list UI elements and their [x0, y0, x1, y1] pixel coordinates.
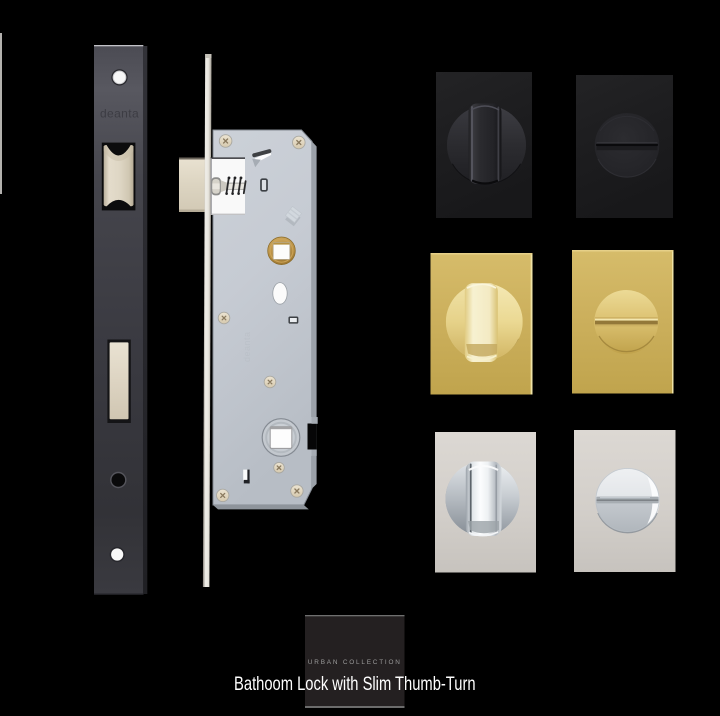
svg-text:Bathoom Lock with Slim Thumb-T: Bathoom Lock with Slim Thumb-Turn: [234, 674, 476, 695]
svg-text:deanta: deanta: [100, 107, 139, 121]
svg-text:URBAN COLLECTION: URBAN COLLECTION: [308, 659, 402, 666]
svg-text:deanta: deanta: [242, 331, 252, 362]
